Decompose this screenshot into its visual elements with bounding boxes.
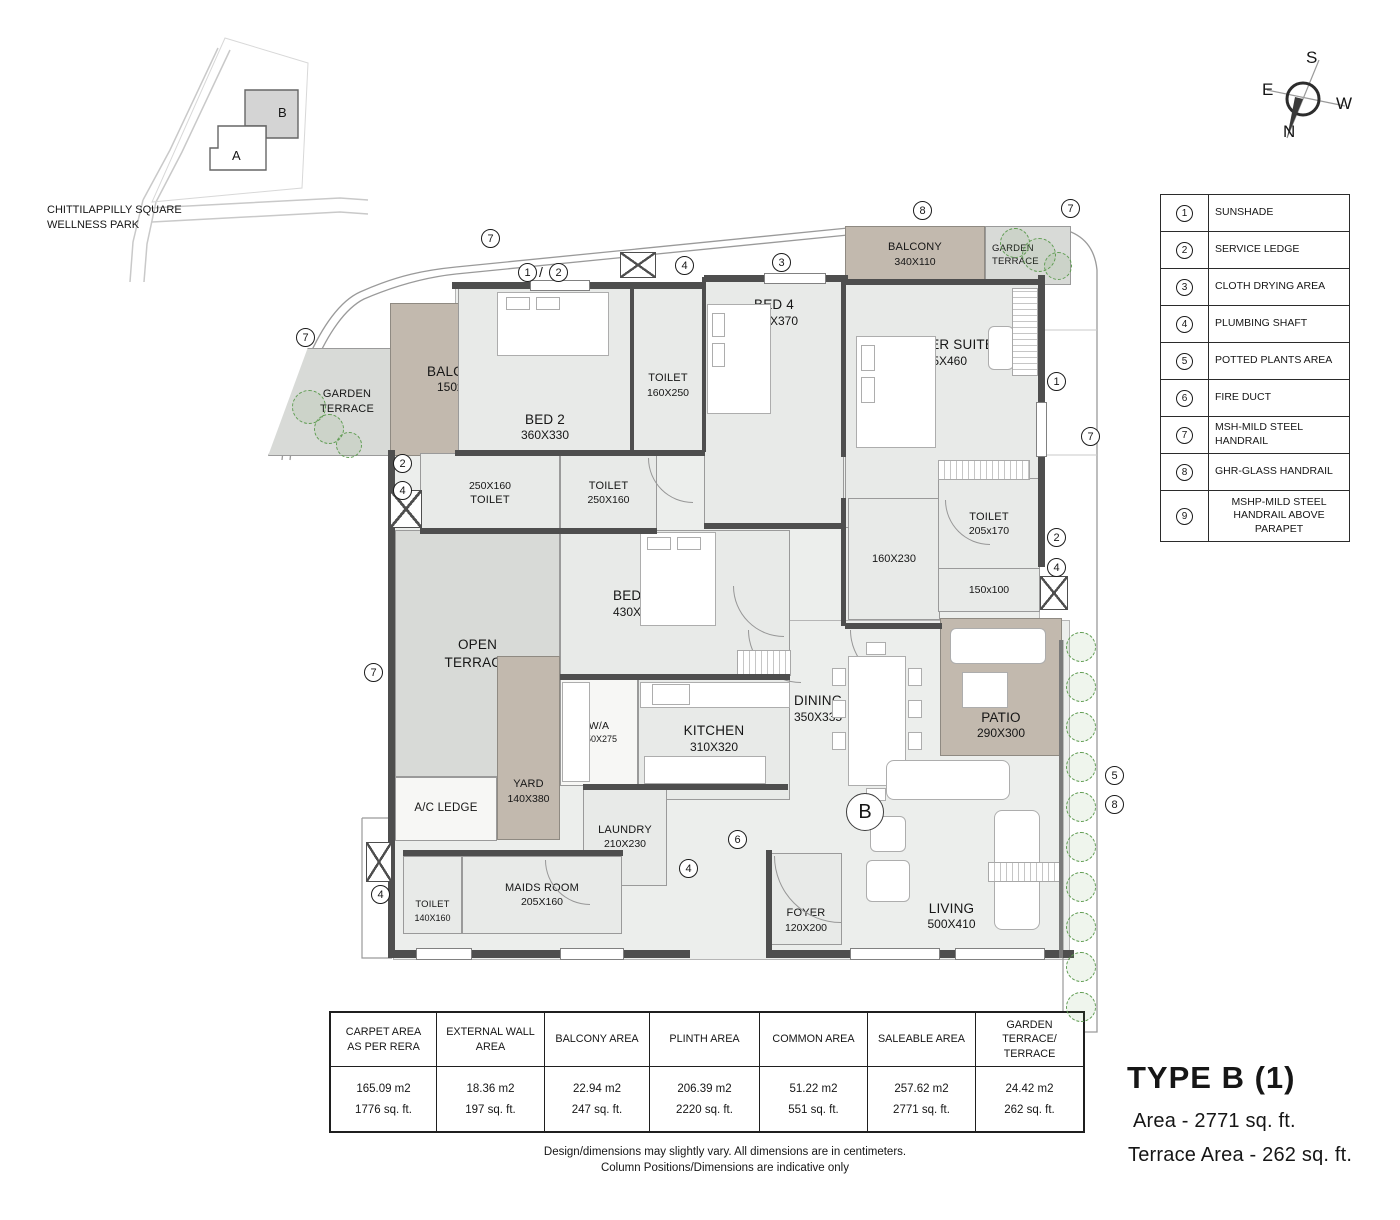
room-walkin: 160X230 xyxy=(848,498,940,620)
tree-icon xyxy=(1066,792,1096,822)
wall xyxy=(845,623,942,629)
room-balcony-top: BALCONY 340X110 xyxy=(845,226,985,283)
pillow-symbol xyxy=(712,313,725,337)
room-maids: MAIDS ROOM 205X160 xyxy=(462,856,622,934)
legend-row: 6FIRE DUCT xyxy=(1161,380,1349,417)
wall xyxy=(704,275,766,282)
wall xyxy=(841,498,846,626)
legend-row: 1SUNSHADE xyxy=(1161,195,1349,232)
plan-title: TYPE B (1) xyxy=(1127,1060,1295,1096)
keynote-marker: 7 xyxy=(1061,199,1080,218)
wall xyxy=(560,674,790,680)
keynote-marker: 2 xyxy=(1047,528,1066,547)
kitchen-counter-symbol xyxy=(562,682,590,782)
window xyxy=(850,948,940,960)
chair-symbol xyxy=(832,668,846,686)
wall xyxy=(583,784,788,790)
chair-symbol xyxy=(908,700,922,718)
keynote-legend: 1SUNSHADE 2SERVICE LEDGE 3CLOTH DRYING A… xyxy=(1160,194,1350,542)
legend-row: 8GHR-GLASS HANDRAIL xyxy=(1161,454,1349,491)
legend-row: 2SERVICE LEDGE xyxy=(1161,232,1349,269)
keynote-marker: 2 xyxy=(393,454,412,473)
keynote-marker: 1 xyxy=(1047,372,1066,391)
plan-terrace-line: Terrace Area - 262 sq. ft. xyxy=(1128,1144,1352,1167)
pillow-symbol xyxy=(647,537,671,550)
wall xyxy=(766,850,772,952)
bed-symbol xyxy=(640,532,716,626)
chair-symbol xyxy=(908,668,922,686)
area-table-values: 22.94 m2247 sq. ft. xyxy=(545,1067,650,1131)
wall xyxy=(403,850,623,856)
legend-label: CLOTH DRYING AREA xyxy=(1209,269,1349,305)
legend-num-circle: 7 xyxy=(1176,427,1193,444)
room-toilet-top: TOILET 160X250 xyxy=(632,286,704,456)
wardrobe-symbol xyxy=(938,460,1030,480)
room-ac-ledge: A/C LEDGE xyxy=(395,777,497,841)
legend-num-circle: 4 xyxy=(1176,316,1193,333)
chair-symbol xyxy=(908,732,922,750)
area-table-values: 206.39 m22220 sq. ft. xyxy=(650,1067,760,1131)
tree-icon xyxy=(1066,912,1096,942)
keynote-marker: 6 xyxy=(728,830,747,849)
sofa-symbol xyxy=(886,760,1010,800)
legend-label: POTTED PLANTS AREA xyxy=(1209,343,1349,379)
legend-num-circle: 6 xyxy=(1176,390,1193,407)
legend-num-circle: 3 xyxy=(1176,279,1193,296)
area-table: CARPET AREA AS PER RERA EXTERNAL WALL AR… xyxy=(329,1011,1085,1133)
legend-row: 4PLUMBING SHAFT xyxy=(1161,306,1349,343)
area-table-header: PLINTH AREA xyxy=(650,1013,760,1067)
wardrobe-symbol xyxy=(737,650,791,676)
legend-num-circle: 2 xyxy=(1176,242,1193,259)
wall xyxy=(1038,275,1045,405)
legend-label: PLUMBING SHAFT xyxy=(1209,306,1349,342)
keynote-marker: 4 xyxy=(1047,558,1066,577)
window xyxy=(560,948,624,960)
legend-num-circle: 9 xyxy=(1176,508,1193,525)
keynote-marker: 3 xyxy=(772,253,791,272)
wall xyxy=(702,277,706,452)
chair-symbol xyxy=(832,700,846,718)
wall xyxy=(704,523,844,529)
hob-symbol xyxy=(652,684,690,705)
legend-row: 3CLOTH DRYING AREA xyxy=(1161,269,1349,306)
legend-label: GHR-GLASS HANDRAIL xyxy=(1209,454,1349,490)
tree-icon xyxy=(1066,832,1096,862)
keynote-marker: 7 xyxy=(364,663,383,682)
room-toilet-bed2: 250X160 TOILET xyxy=(420,453,560,533)
keynote-marker: 7 xyxy=(296,328,315,347)
tree-icon xyxy=(1066,672,1096,702)
keynote-marker: 5 xyxy=(1105,766,1124,785)
tree-icon xyxy=(1066,952,1096,982)
area-table-header: COMMON AREA xyxy=(760,1013,868,1067)
wall xyxy=(632,282,706,289)
keynote-marker: 8 xyxy=(913,201,932,220)
room-yard: YARD 140X380 xyxy=(497,656,560,840)
park-label-line2: WELLNESS PARK xyxy=(47,218,182,233)
wall xyxy=(630,286,634,456)
wardrobe-symbol xyxy=(988,862,1062,882)
park-label-line1: CHITTILAPPILLY SQUARE xyxy=(47,203,182,218)
compass-west-label: W xyxy=(1336,94,1352,114)
keynote-marker: 7 xyxy=(1081,427,1100,446)
keynote-slash: / xyxy=(539,264,543,280)
legend-label: SERVICE LEDGE xyxy=(1209,232,1349,268)
area-table-header: GARDEN TERRACE/ TERRACE xyxy=(976,1013,1083,1067)
area-table-header: SALEABLE AREA xyxy=(868,1013,976,1067)
wall xyxy=(455,450,705,456)
legend-label: MSH-MILD STEEL HANDRAIL xyxy=(1209,417,1349,453)
legend-num-circle: 1 xyxy=(1176,205,1193,222)
tree-icon xyxy=(1066,712,1096,742)
plumbing-shaft-icon xyxy=(366,842,392,882)
legend-num-circle: 8 xyxy=(1176,464,1193,481)
site-map-building-a-label: A xyxy=(232,148,241,163)
keynote-marker: 2 xyxy=(549,263,568,282)
window xyxy=(1036,402,1047,457)
bed-symbol xyxy=(497,292,609,356)
unit-type-marker: B xyxy=(846,793,884,831)
keynote-marker: 8 xyxy=(1105,795,1124,814)
keynote-marker: 4 xyxy=(679,859,698,878)
legend-label: SUNSHADE xyxy=(1209,195,1349,231)
chair-symbol xyxy=(866,642,886,655)
keynote-marker: 4 xyxy=(371,885,390,904)
chair-symbol xyxy=(988,326,1014,370)
area-table-header: CARPET AREA AS PER RERA xyxy=(331,1013,437,1067)
legend-num-circle: 5 xyxy=(1176,353,1193,370)
table-symbol xyxy=(962,672,1008,708)
disclaimer-line2: Column Positions/Dimensions are indicati… xyxy=(445,1162,1005,1174)
legend-row: 9MSHP-MILD STEEL HANDRAIL ABOVE PARAPET xyxy=(1161,491,1349,541)
armchair-symbol xyxy=(866,860,910,902)
tree-icon xyxy=(1066,872,1096,902)
plan-area-line: Area - 2771 sq. ft. xyxy=(1133,1110,1296,1133)
legend-label: FIRE DUCT xyxy=(1209,380,1349,416)
tree-icon xyxy=(336,432,362,458)
wall xyxy=(420,528,657,534)
floorplan-sheet: B A CHITTILAPPILLY SQUARE WELLNESS PARK … xyxy=(0,0,1400,1220)
window xyxy=(764,273,826,284)
area-table-values: 18.36 m2197 sq. ft. xyxy=(437,1067,545,1131)
keynote-marker: 4 xyxy=(675,256,694,275)
area-table-values: 165.09 m21776 sq. ft. xyxy=(331,1067,437,1131)
plumbing-shaft-icon xyxy=(620,252,656,278)
tree-icon xyxy=(1066,632,1096,662)
area-table-values: 257.62 m22771 sq. ft. xyxy=(868,1067,976,1131)
tree-icon xyxy=(1044,252,1072,280)
compass-south-label: S xyxy=(1306,48,1317,68)
pillow-symbol xyxy=(677,537,701,550)
legend-row: 5POTTED PLANTS AREA xyxy=(1161,343,1349,380)
pillow-symbol xyxy=(536,297,560,310)
compass-north-label: N xyxy=(1283,122,1295,142)
pillow-symbol xyxy=(712,343,725,367)
area-table-values: 51.22 m2551 sq. ft. xyxy=(760,1067,868,1131)
kitchen-island-symbol xyxy=(644,756,766,784)
site-map-park-label: CHITTILAPPILLY SQUARE WELLNESS PARK xyxy=(47,203,182,234)
compass-east-label: E xyxy=(1262,80,1273,100)
keynote-marker: 4 xyxy=(393,481,412,500)
area-table-header: EXTERNAL WALL AREA xyxy=(437,1013,545,1067)
area-table-values: 24.42 m2262 sq. ft. xyxy=(976,1067,1083,1131)
room-passage-150x100: 150x100 xyxy=(938,568,1040,612)
window xyxy=(955,948,1045,960)
bed-symbol xyxy=(707,304,771,414)
pillow-symbol xyxy=(861,377,875,403)
plumbing-shaft-icon xyxy=(1040,576,1068,610)
pillow-symbol xyxy=(861,345,875,371)
wardrobe-symbol xyxy=(1012,288,1038,376)
disclaimer-line1: Design/dimensions may slightly vary. All… xyxy=(445,1146,1005,1158)
keynote-marker: 7 xyxy=(481,229,500,248)
keynote-marker: 1 xyxy=(518,263,537,282)
tree-icon xyxy=(1066,752,1096,782)
legend-label: MSHP-MILD STEEL HANDRAIL ABOVE PARAPET xyxy=(1209,491,1349,541)
tree-icon xyxy=(1066,992,1096,1022)
legend-row: 7MSH-MILD STEEL HANDRAIL xyxy=(1161,417,1349,454)
wall xyxy=(845,279,1045,285)
bed-symbol xyxy=(856,336,936,448)
wall xyxy=(1059,640,1063,958)
chair-symbol xyxy=(832,732,846,750)
wall xyxy=(841,277,846,457)
room-toilet-maids: TOILET 140X160 xyxy=(403,856,462,934)
sofa-symbol xyxy=(950,628,1046,664)
area-table-header: BALCONY AREA xyxy=(545,1013,650,1067)
window xyxy=(416,948,472,960)
room-toilet-bed3: TOILET 250X160 xyxy=(560,453,657,533)
pillow-symbol xyxy=(506,297,530,310)
site-map-building-b-label: B xyxy=(278,105,287,120)
wall xyxy=(1038,455,1045,567)
